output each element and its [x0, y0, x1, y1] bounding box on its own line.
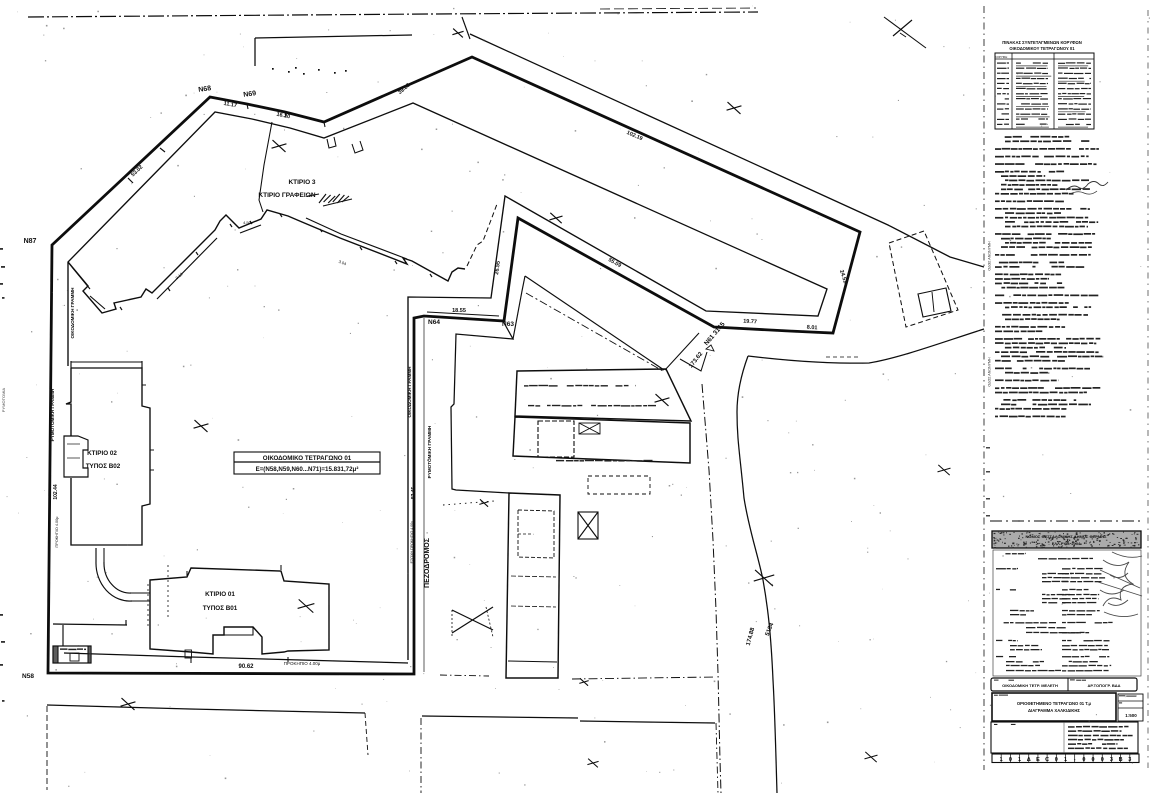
svg-text:ΡΥΜΟΤΟΜΙΚΗ ΓΡΑΜΜΗ: ΡΥΜΟΤΟΜΙΚΗ ΓΡΑΜΜΗ — [427, 425, 432, 478]
svg-text:ΕΣΟΧΗ ΠΡΟΚΗΠΙΟ 4.00μ: ΕΣΟΧΗ ΠΡΟΚΗΠΙΟ 4.00μ — [410, 521, 414, 564]
svg-text:ΔΙΑΓΡΑΜΜΑ ΧΑΛΚΙΔΙΚΗΣ: ΔΙΑΓΡΑΜΜΑ ΧΑΛΚΙΔΙΚΗΣ — [1028, 708, 1080, 713]
svg-text:0: 0 — [1055, 757, 1058, 763]
svg-text:1:500: 1:500 — [1125, 713, 1137, 718]
svg-text:ΟΡΙΟΘΕΤΗΜΕΝΟ ΤΕΤΡΑΓΩΝΟ 01 Τ.μ: ΟΡΙΟΘΕΤΗΜΕΝΟ ΤΕΤΡΑΓΩΝΟ 01 Τ.μ — [1017, 701, 1092, 706]
svg-text:ΚΤΙΡΙΟ 01: ΚΤΙΡΙΟ 01 — [205, 591, 235, 598]
svg-text:0: 0 — [1101, 757, 1104, 763]
svg-text:19.77: 19.77 — [743, 319, 757, 326]
svg-text:Ν87: Ν87 — [24, 238, 37, 245]
svg-text:ΚΟΡΥΦΗ: ΚΟΡΥΦΗ — [995, 55, 1008, 59]
svg-text:Δ: Δ — [1027, 757, 1031, 763]
svg-text:Ν58: Ν58 — [22, 673, 34, 680]
svg-text:4.50: 4.50 — [243, 220, 252, 225]
svg-text:ΠΡΟΚΗΠΙΟ 4.00μ: ΠΡΟΚΗΠΙΟ 4.00μ — [284, 661, 321, 666]
svg-text:18.55: 18.55 — [452, 308, 466, 314]
svg-text:1: 1 — [1000, 757, 1003, 763]
svg-text:ΤΥΠΟΣ Β01: ΤΥΠΟΣ Β01 — [203, 605, 238, 612]
svg-text:3: 3 — [1110, 757, 1113, 763]
svg-text:ΡΥΜΟΤΟΜΙΚΗ ΓΡΑΜΜΗ: ΡΥΜΟΤΟΜΙΚΗ ΓΡΑΜΜΗ — [50, 388, 55, 441]
svg-text:Ν64: Ν64 — [428, 319, 440, 326]
svg-text:102.44: 102.44 — [53, 484, 59, 500]
svg-text:ΠΡΟΚΗΠΙΟ 4.00μ: ΠΡΟΚΗΠΙΟ 4.00μ — [55, 517, 59, 548]
svg-text:ΟΙΚΟΔΟΜΙΚΗ ΓΡΑΜΜΗ: ΟΙΚΟΔΟΜΙΚΗ ΓΡΑΜΜΗ — [407, 366, 412, 418]
svg-text:ΟΔΟΣ ΑΝΩΝΥΜΗ: ΟΔΟΣ ΑΝΩΝΥΜΗ — [988, 241, 992, 271]
svg-text:Β: Β — [1119, 757, 1123, 763]
svg-text:ΚΤΙΡΙΟ ΓΡΑΦΕΙΩΝ: ΚΤΙΡΙΟ ΓΡΑΦΕΙΩΝ — [258, 192, 315, 199]
svg-text:90.62: 90.62 — [238, 664, 254, 670]
svg-text:0: 0 — [1082, 757, 1085, 763]
svg-text:ΑΡ.ΤΟΠΟΓΡ. ΒΔΑ: ΑΡ.ΤΟΠΟΓΡ. ΒΔΑ — [1087, 683, 1120, 688]
svg-text:8.01: 8.01 — [807, 325, 818, 332]
svg-text:1: 1 — [1018, 757, 1021, 763]
svg-text:3: 3 — [1128, 757, 1131, 763]
svg-text:-: - — [1074, 757, 1076, 763]
svg-text:ΟΔΟΣ ΑΝΩΝΥΜΗ: ΟΔΟΣ ΑΝΩΝΥΜΗ — [988, 357, 992, 387]
svg-text:Ε=(Ν58,Ν59,Ν60...Ν71)=15.831,7: Ε=(Ν58,Ν59,Ν60...Ν71)=15.831,72μ² — [256, 466, 359, 473]
svg-text:ΟΙΚΟΔΟΜΙΚΗ ΤΕΤΡ. ΜΕΛΕΤΗ: ΟΙΚΟΔΟΜΙΚΗ ΤΕΤΡ. ΜΕΛΕΤΗ — [1002, 683, 1058, 688]
svg-text:ΠΙΝΑΚΑΣ ΣΥΝΤΕΤΑΓΜΕΝΩΝ ΚΟΡΥΦΩΝ: ΠΙΝΑΚΑΣ ΣΥΝΤΕΤΑΓΜΕΝΩΝ ΚΟΡΥΦΩΝ — [1002, 40, 1082, 45]
svg-text:ΚΤΙΡΙΟ 3: ΚΤΙΡΙΟ 3 — [288, 179, 315, 186]
svg-text:ΚΤΙΡΙΟ 02: ΚΤΙΡΙΟ 02 — [87, 450, 117, 457]
svg-text:ΟΙΚΟΔΟΜΙΚΟΥ ΤΕΤΡΑΓΩΝΟΥ 01: ΟΙΚΟΔΟΜΙΚΟΥ ΤΕΤΡΑΓΩΝΟΥ 01 — [1009, 46, 1075, 51]
svg-text:1: 1 — [1064, 757, 1067, 763]
svg-text:Ε: Ε — [1036, 757, 1040, 763]
svg-text:ΠΕΖΟΔΡΟΜΟΣ: ΠΕΖΟΔΡΟΜΟΣ — [424, 538, 431, 588]
svg-text:ΤΥΠΟΣ Β02: ΤΥΠΟΣ Β02 — [86, 463, 121, 470]
svg-text:ΟΙΚΟΔΟΜΙΚΗ ΓΡΑΜΜΗ: ΟΙΚΟΔΟΜΙΚΗ ΓΡΑΜΜΗ — [70, 287, 75, 339]
svg-text:C: C — [1045, 757, 1049, 763]
svg-text:ΟΙΚΟΔΟΜΙΚΟ ΤΕΤΡΑΓΩΝΟ 01: ΟΙΚΟΔΟΜΙΚΟ ΤΕΤΡΑΓΩΝΟ 01 — [263, 455, 352, 462]
svg-text:0: 0 — [1009, 757, 1012, 763]
svg-text:87.45: 87.45 — [411, 487, 417, 500]
svg-text:0: 0 — [1092, 757, 1095, 763]
svg-text:ΡΥΜΟΤΟΜΙΑ: ΡΥΜΟΤΟΜΙΑ — [1, 387, 6, 412]
